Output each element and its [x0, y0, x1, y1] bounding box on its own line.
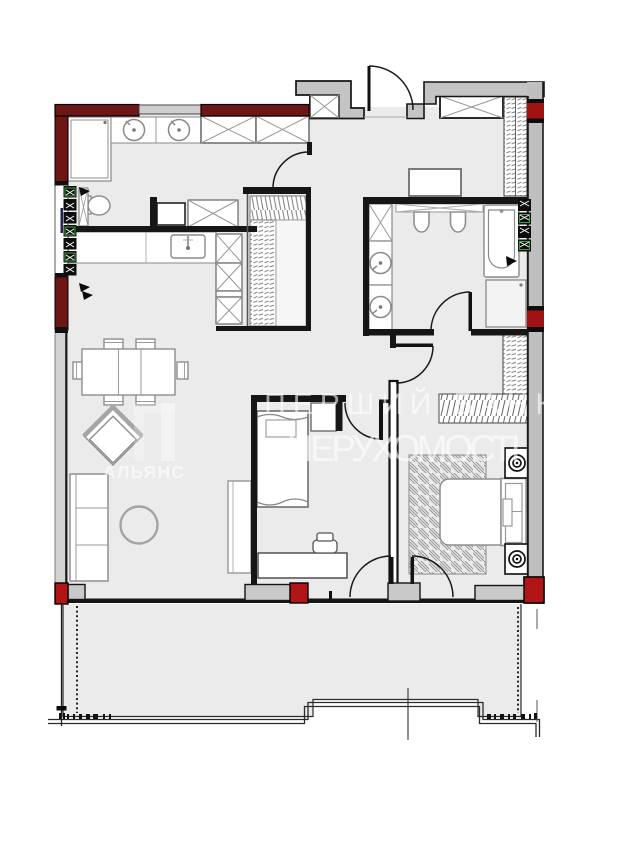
svg-text:АЛЬЯНС: АЛЬЯНС — [103, 462, 185, 482]
svg-text:ПЕРШИЙ БАНК: ПЕРШИЙ БАНК — [264, 387, 560, 421]
svg-text:НЕРУХОМОСТІ: НЕРУХОМОСТІ — [287, 428, 518, 469]
